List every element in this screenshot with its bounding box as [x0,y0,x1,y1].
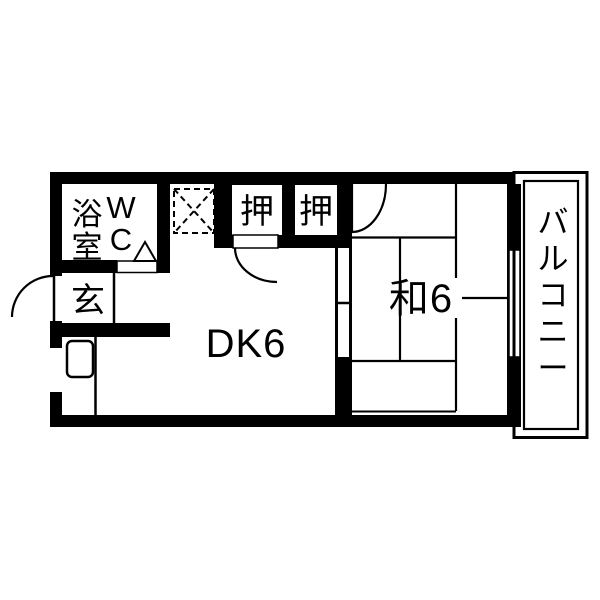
wall-left-mid [50,321,62,348]
wall-top [50,172,515,184]
wall-bath-right [157,184,170,273]
bath-label: 浴室 [72,197,103,265]
closet-door-arc [235,248,277,282]
kitchen-sink [67,341,93,377]
floor-plan-drawing: 浴室 WC 押 押 玄 DK6 和6 バルコニー [0,0,600,600]
wc-door-triangle [134,242,156,261]
closet-door-opening [233,235,278,248]
wall-left-upper [50,172,62,276]
wall-bottom [50,415,521,427]
floor-plan-page: 浴室 WC 押 押 玄 DK6 和6 バルコニー [0,0,600,600]
wc-label: WC [106,190,136,257]
wall-partition-lower [335,357,352,415]
wall-genkan-bottom [62,323,170,337]
entrance-label: 玄 [71,282,105,320]
balcony-label: バルコニー [538,205,569,386]
closet-left-label: 押 [240,193,274,231]
dining-kitchen-label: DK6 [206,322,287,366]
refrigerator-dashed-box [174,189,214,233]
bath-door-opening [117,261,157,273]
entrance-door-arc [12,276,53,317]
japanese-room-label: 和6 [389,277,453,321]
closet-right-label: 押 [299,193,333,231]
washitsu-door-arc [352,184,386,232]
room-labels: 浴室 WC 押 押 玄 DK6 和6 バルコニー [71,190,569,386]
